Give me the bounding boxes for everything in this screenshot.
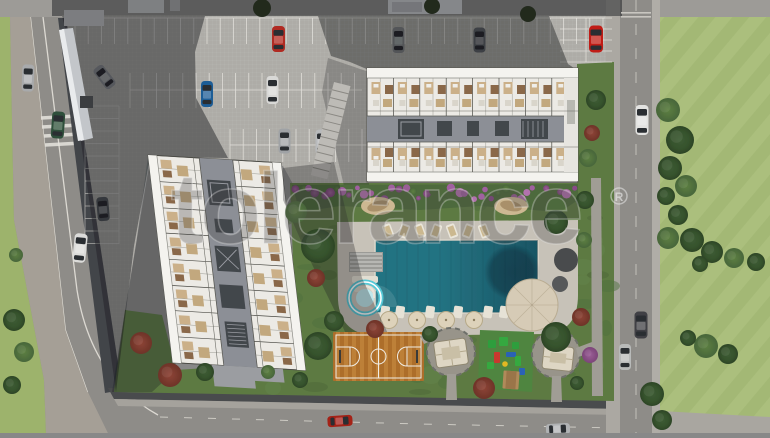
svg-text:R: R <box>615 190 624 204</box>
svg-text:tolerance: tolerance <box>171 153 581 265</box>
